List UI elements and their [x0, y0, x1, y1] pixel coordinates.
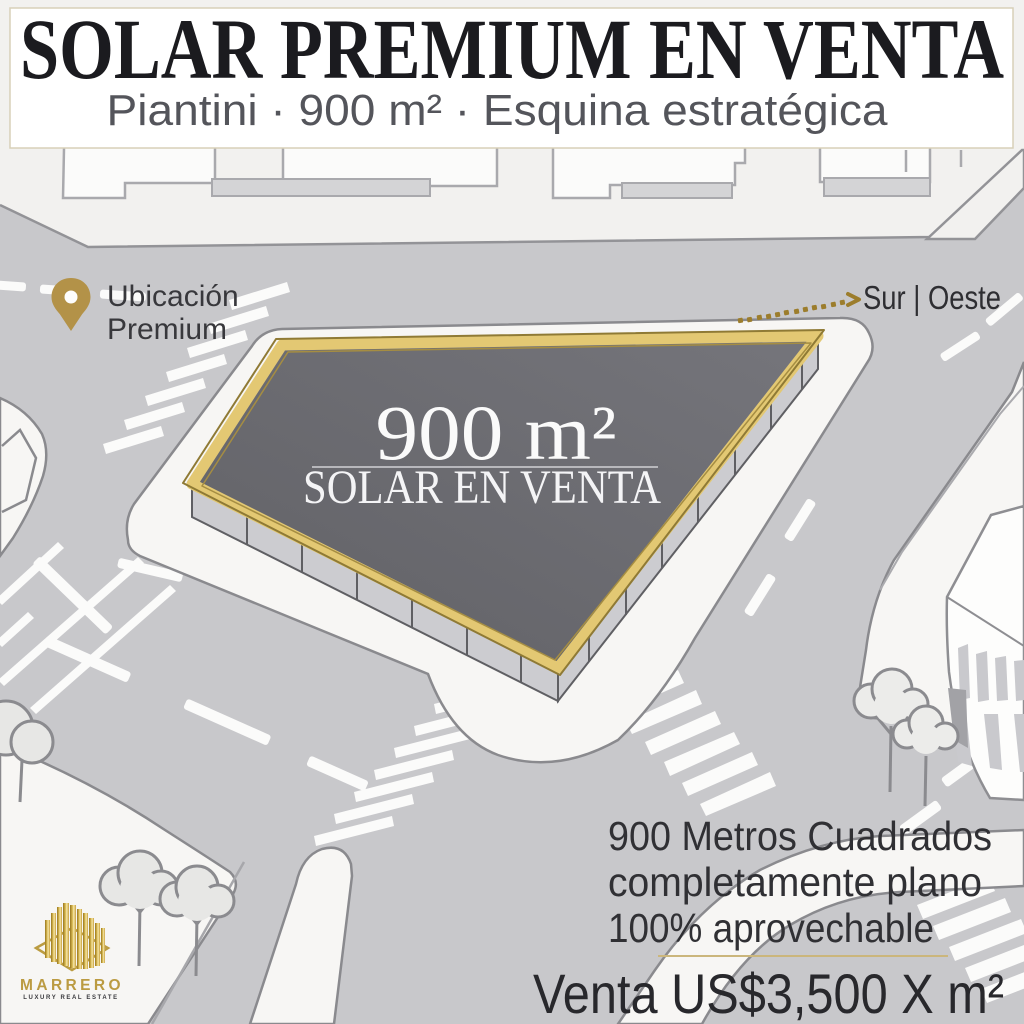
svg-text:Venta US$3,500 X m²: Venta US$3,500 X m² [533, 962, 1004, 1024]
svg-text:SOLAR EN VENTA: SOLAR EN VENTA [303, 461, 661, 514]
svg-text:completamente plano: completamente plano [608, 859, 982, 905]
svg-text:Piantini · 900 m² · Esquina e: Piantini · 900 m² · Esquina estratégica [107, 86, 889, 135]
svg-text:100% aprovechable: 100% aprovechable [608, 905, 934, 951]
svg-text:900 Metros Cuadrados: 900 Metros Cuadrados [608, 813, 992, 859]
svg-text:SOLAR PREMIUM EN VENTA: SOLAR PREMIUM EN VENTA [20, 1, 1004, 97]
svg-text:Sur | Oeste: Sur | Oeste [863, 279, 1001, 316]
svg-text:Premium: Premium [107, 313, 227, 346]
svg-text:MARRERO: MARRERO [20, 977, 124, 994]
svg-text:LUXURY REAL ESTATE: LUXURY REAL ESTATE [23, 995, 118, 1001]
svg-text:Ubicación: Ubicación [107, 280, 239, 313]
